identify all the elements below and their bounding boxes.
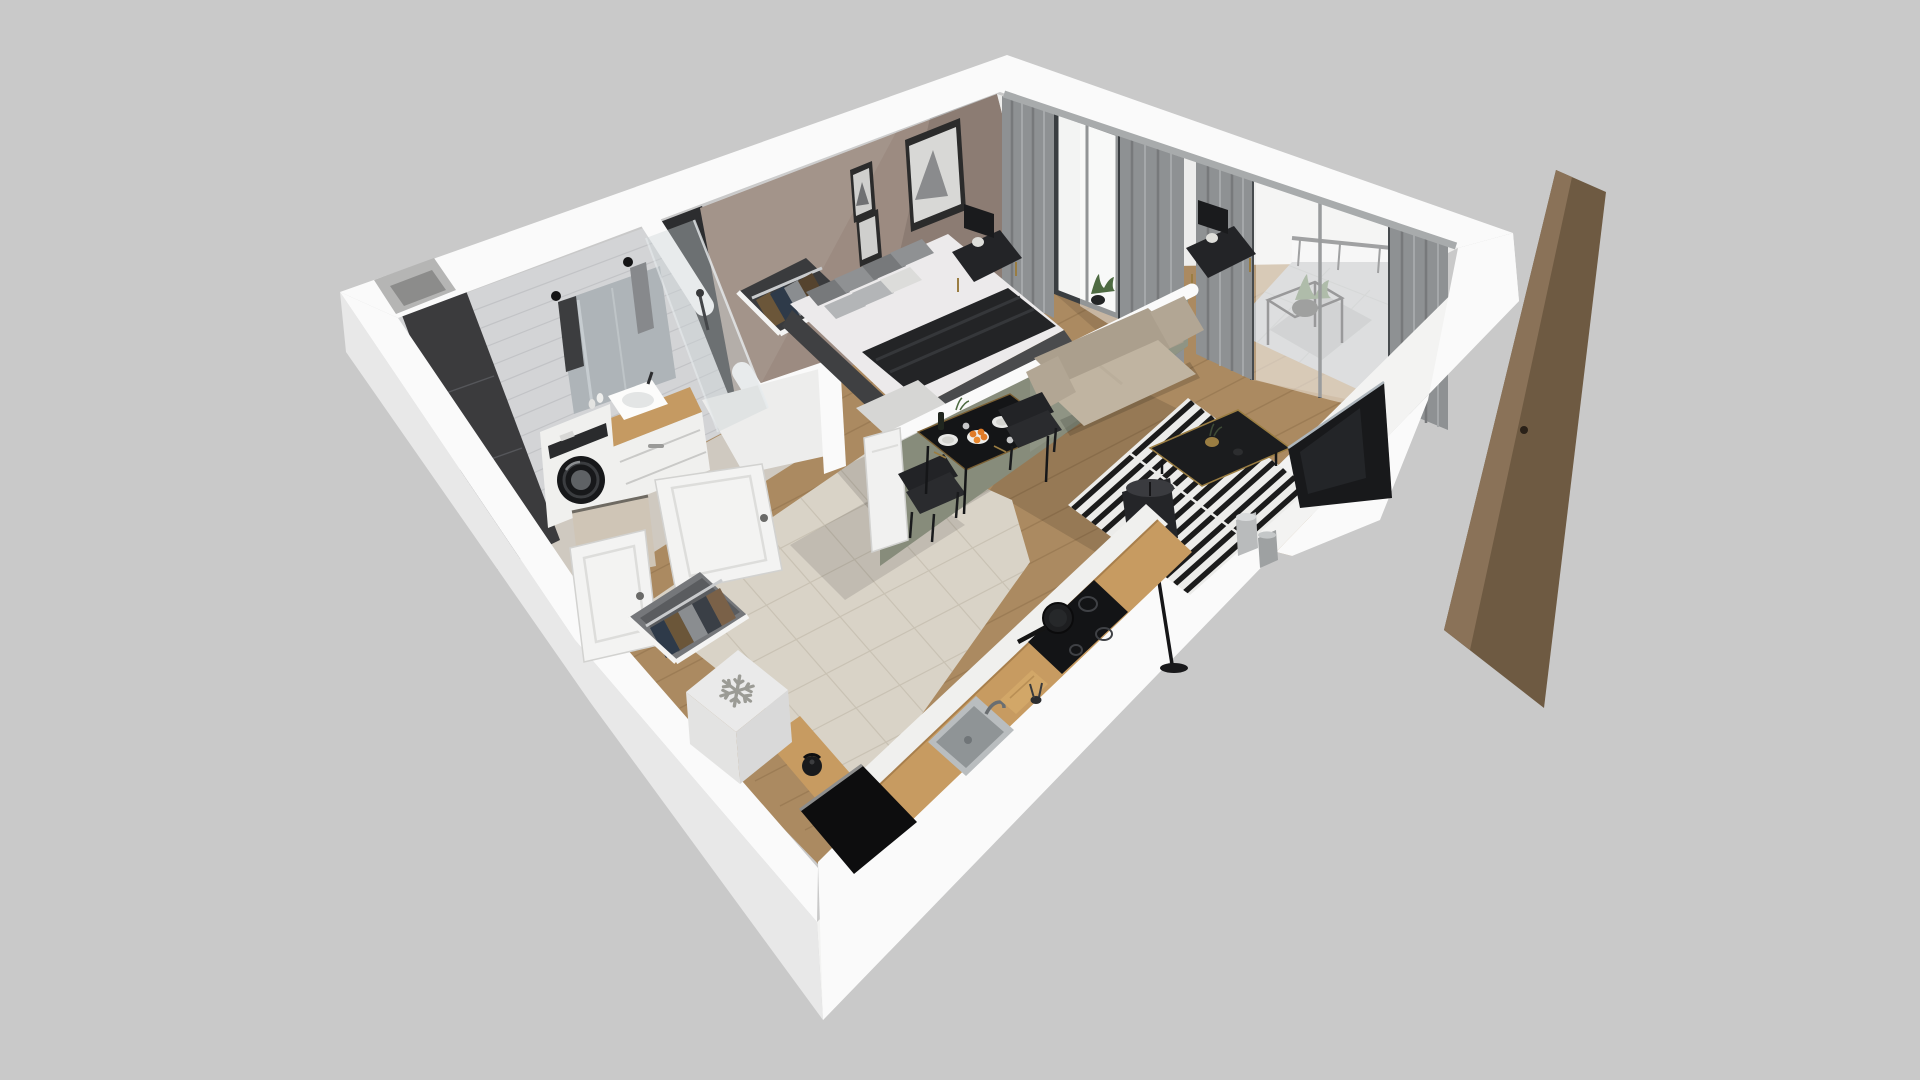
floorplan-render: [0, 0, 1920, 1080]
door-handle: [1520, 426, 1528, 434]
door-handle: [760, 514, 768, 522]
bottle-2: [589, 399, 596, 409]
bottle-1: [597, 393, 604, 403]
sheer-balcony-1: [1256, 176, 1330, 400]
bottle: [938, 412, 944, 430]
kettle[interactable]: [802, 756, 822, 776]
floorplan-canvas: [0, 0, 1920, 1080]
curtain-bedroom-left: [1002, 96, 1054, 318]
bedroom-door-open[interactable]: [864, 428, 908, 552]
sink-drain: [964, 736, 972, 744]
gold-vase: [1205, 437, 1219, 447]
table-bowl: [1233, 449, 1243, 456]
lamp-base: [1160, 663, 1188, 673]
lamp-base: [972, 237, 984, 247]
glass-1: [963, 423, 970, 430]
bathroom-door-open[interactable]: [655, 464, 782, 592]
